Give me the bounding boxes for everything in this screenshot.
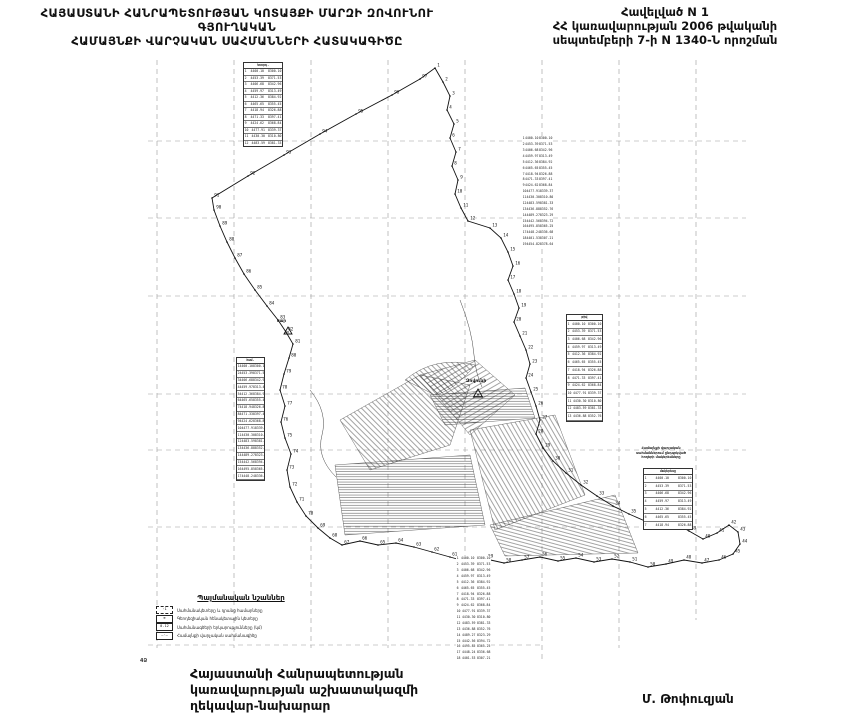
svg-text:48: 48	[686, 555, 692, 560]
svg-text:67: 67	[344, 540, 350, 545]
signatory-line3: ղեկավար-նախարար	[190, 698, 510, 714]
svg-text:3: 3	[452, 91, 455, 96]
svg-text:72: 72	[292, 482, 298, 487]
svg-text:25: 25	[533, 387, 539, 392]
svg-text:91: 91	[214, 193, 220, 198]
signatory-line1: Հայաստանի Հանրապետության	[190, 666, 510, 682]
coord-list-south: 1 4400.10 8300.10 2 4453.39 8371.53 3 44…	[456, 556, 491, 662]
svg-text:62: 62	[434, 547, 440, 552]
svg-text:47: 47	[704, 558, 710, 563]
svg-text:80: 80	[291, 353, 297, 358]
coord-table-east: ցուցակթիվ 1 4400.10 8300.10 2 4453.39 83…	[566, 314, 603, 422]
svg-text:28: 28	[538, 429, 544, 434]
svg-text:40: 40	[705, 534, 711, 539]
legend-item: 0.12 Սահմանագծերի երկարությունները (կմ)	[156, 623, 326, 632]
boundary-point-icon: ·1	[156, 606, 173, 614]
svg-text:96: 96	[394, 90, 400, 95]
svg-text:49: 49	[668, 559, 674, 564]
svg-text:41: 41	[719, 528, 725, 533]
scan-corner-mark: 4Ձ	[140, 658, 147, 664]
svg-text:8: 8	[454, 161, 457, 166]
svg-text:78: 78	[282, 385, 288, 390]
svg-text:89: 89	[222, 221, 228, 226]
svg-text:92: 92	[250, 171, 256, 176]
svg-text:57: 57	[524, 555, 530, 560]
stream-line	[310, 390, 336, 477]
svg-text:13: 13	[492, 223, 498, 228]
benchmark-label: սար	[277, 318, 286, 323]
svg-text:74: 74	[293, 449, 299, 454]
svg-text:85: 85	[257, 285, 263, 290]
svg-text:58: 58	[506, 558, 512, 563]
svg-text:29: 29	[545, 443, 551, 448]
svg-text:46: 46	[721, 555, 727, 560]
svg-text:70: 70	[308, 511, 314, 516]
svg-text:54: 54	[578, 553, 584, 558]
svg-text:6: 6	[452, 133, 455, 138]
svg-text:75: 75	[287, 433, 293, 438]
svg-text:22: 22	[528, 345, 534, 350]
geodetic-point-icon: ⊕	[156, 615, 173, 623]
svg-text:30: 30	[555, 456, 561, 461]
svg-text:94: 94	[322, 129, 328, 134]
svg-text:23: 23	[532, 359, 538, 364]
svg-text:77: 77	[287, 401, 293, 406]
svg-text:5: 5	[456, 119, 459, 124]
svg-text:52: 52	[614, 554, 620, 559]
svg-text:79: 79	[286, 369, 292, 374]
svg-text:27: 27	[542, 415, 548, 420]
svg-text:2: 2	[445, 77, 448, 82]
svg-text:45: 45	[735, 549, 741, 554]
svg-text:50: 50	[650, 562, 656, 567]
svg-text:20: 20	[516, 317, 522, 322]
svg-text:51: 51	[632, 557, 638, 562]
svg-text:63: 63	[416, 542, 422, 547]
coord-table-north: ԶովունիԿոորդ. 1 4400.10 8300.10 2 4453.3…	[243, 62, 283, 147]
svg-text:69: 69	[320, 523, 326, 528]
svg-text:81: 81	[295, 339, 301, 344]
svg-text:97: 97	[422, 74, 428, 79]
svg-text:35: 35	[631, 509, 637, 514]
svg-text:11: 11	[463, 203, 469, 208]
map-svg: 1234567891011121314151617181920212223242…	[0, 0, 852, 714]
svg-text:12: 12	[470, 216, 476, 221]
svg-text:65: 65	[380, 540, 386, 545]
svg-text:7: 7	[458, 147, 461, 152]
svg-text:34: 34	[615, 501, 621, 506]
svg-text:15: 15	[510, 247, 516, 252]
svg-text:88: 88	[229, 237, 235, 242]
svg-text:33: 33	[599, 491, 605, 496]
area-table-southeast: մակերեսը 1 4400.10 8300.10 2 4453.39 837…	[643, 468, 693, 530]
legend-item: ·1 Սահմանակետերը և դրանց համարները	[156, 606, 326, 615]
map-area: 1234567891011121314151617181920212223242…	[0, 0, 852, 714]
svg-text:31: 31	[568, 468, 574, 473]
svg-text:10: 10	[457, 189, 463, 194]
svg-text:4: 4	[449, 105, 452, 110]
svg-text:87: 87	[237, 253, 243, 258]
svg-text:43: 43	[740, 527, 746, 532]
signature-name: Մ. Թոփուզյան	[642, 692, 734, 706]
svg-text:66: 66	[362, 536, 368, 541]
svg-text:53: 53	[596, 557, 602, 562]
legend: Պայմանական նշաններ ·1 Սահմանակետերը և դր…	[156, 594, 326, 640]
svg-text:1: 1	[437, 63, 440, 68]
svg-text:32: 32	[583, 480, 589, 485]
svg-text:68: 68	[332, 533, 338, 538]
legend-item: —·— Համայնքի վարչական սահմանագիծը	[156, 632, 326, 641]
settlement-label: Զովունի	[466, 379, 486, 384]
signatory-line2: կառավարության աշխատակազմի	[190, 682, 510, 698]
legend-title: Պայմանական նշաններ	[156, 594, 326, 603]
svg-text:64: 64	[398, 538, 404, 543]
coord-table-west: ցուցակհամ. 1 4400.10 8300.10 2 4453.39 8…	[236, 357, 265, 481]
svg-text:21: 21	[522, 331, 528, 336]
svg-text:16: 16	[515, 261, 521, 266]
svg-text:19: 19	[521, 303, 527, 308]
svg-text:18: 18	[516, 289, 522, 294]
area-note: Համայնքի վարչական սահմաններում ընդգրկված…	[618, 446, 704, 460]
svg-text:86: 86	[246, 269, 252, 274]
svg-text:42: 42	[731, 520, 737, 525]
svg-text:90: 90	[216, 205, 222, 210]
svg-text:76: 76	[283, 417, 289, 422]
svg-text:14: 14	[503, 233, 509, 238]
svg-text:55: 55	[560, 556, 566, 561]
svg-text:26: 26	[538, 401, 544, 406]
boundary-line-icon: —·—	[156, 632, 173, 640]
svg-text:17: 17	[510, 275, 516, 280]
svg-text:93: 93	[286, 150, 292, 155]
svg-text:84: 84	[269, 301, 275, 306]
svg-text:24: 24	[528, 373, 534, 378]
legend-item: ⊕ Գեոդեզիական հենակետային կետերը	[156, 615, 326, 624]
coord-list-northeast: ցուցակ 1 4400.10 8300.10 2 4453.39 8371.…	[522, 136, 553, 248]
svg-text:9: 9	[460, 175, 463, 180]
svg-text:71: 71	[299, 497, 305, 502]
scanned-map-page: { "document": { "titles": { "left_line1"…	[0, 0, 852, 714]
svg-text:73: 73	[289, 465, 295, 470]
svg-text:95: 95	[358, 109, 364, 114]
svg-text:44: 44	[742, 539, 748, 544]
svg-text:56: 56	[542, 552, 548, 557]
signatory-block: Հայաստանի Հանրապետության կառավարության ա…	[190, 666, 510, 714]
segment-length-icon: 0.12	[156, 623, 173, 631]
